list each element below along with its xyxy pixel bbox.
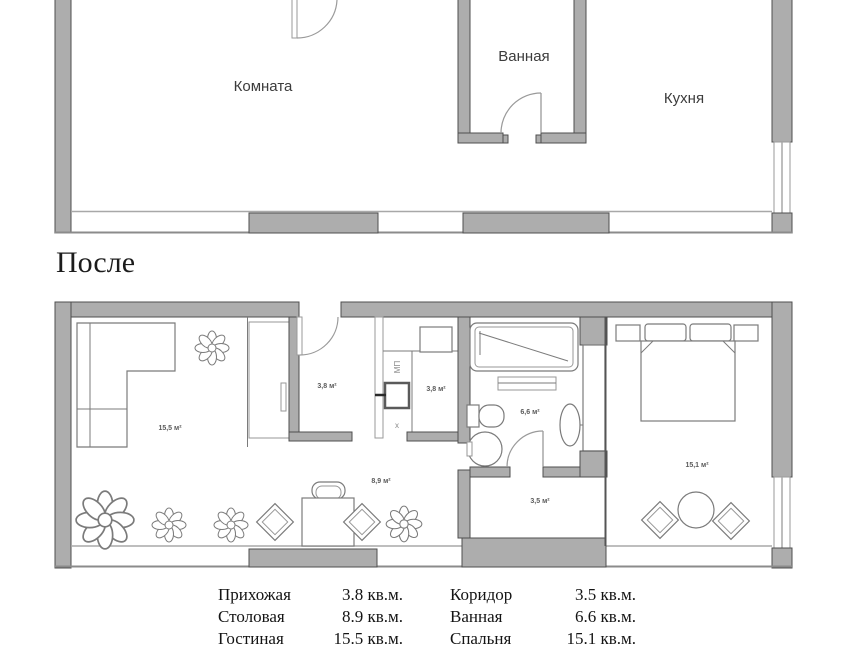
area-label-kitchen: 3,8 м² xyxy=(426,386,446,393)
room-door xyxy=(292,0,337,38)
wall-duct xyxy=(580,317,607,345)
dining-chair xyxy=(257,504,294,541)
entry-door-leaf xyxy=(297,317,302,355)
legend-row: Ванная 6.6 кв.м. xyxy=(450,606,636,628)
legend-column-right: Коридор 3.5 кв.м. Ванная 6.6 кв.м. Спаль… xyxy=(450,584,636,650)
closet-handle xyxy=(281,383,286,411)
radiator xyxy=(462,538,606,567)
closet xyxy=(249,322,289,438)
wall-bathroom-bottom xyxy=(543,467,583,477)
room-label-kuhnya: Кухня xyxy=(664,90,704,107)
legend-room-name: Коридор xyxy=(450,584,562,606)
kitchen-sink xyxy=(385,383,409,408)
washbasin xyxy=(468,432,502,466)
area-label-bedroom: 15,1 м² xyxy=(685,462,709,469)
area-label-dining: 8,9 м² xyxy=(371,478,391,485)
plant-icon xyxy=(76,491,134,549)
bathroom-door xyxy=(501,93,541,133)
area-label-corridor: 3,5 м² xyxy=(530,498,550,505)
dining-area: 8,9 м² xyxy=(257,478,422,546)
area-label-hallway: 3,8 м² xyxy=(317,383,337,390)
after-heading: После xyxy=(56,247,135,279)
wall-right xyxy=(772,302,792,477)
wall-right-corner xyxy=(772,213,792,233)
wall-top xyxy=(341,302,792,317)
legend-room-area: 15.5 кв.м. xyxy=(325,628,403,650)
bed xyxy=(641,341,735,421)
round-table xyxy=(678,492,714,528)
hob-label: х xyxy=(395,421,399,430)
floor-plan-before: Комната Ванная Кухня xyxy=(0,0,850,237)
area-label-bathroom: 6,6 м² xyxy=(520,409,540,416)
toilet-bowl xyxy=(479,405,504,427)
legend-room-area: 8.9 кв.м. xyxy=(325,606,403,628)
legend-row: Прихожая 3.8 кв.м. xyxy=(218,584,403,606)
dishwasher-label: МП xyxy=(393,361,402,374)
bathroom: 6,6 м² xyxy=(458,317,585,538)
radiator xyxy=(249,213,378,233)
wall-top xyxy=(55,302,299,317)
entry-door-arc xyxy=(300,317,338,355)
legend-room-name: Спальня xyxy=(450,628,562,650)
legend-room-name: Столовая xyxy=(218,606,325,628)
area-legend: Прихожая 3.8 кв.м. Столовая 8.9 кв.м. Го… xyxy=(218,584,636,650)
wall-left xyxy=(55,302,71,568)
wall-hallway-kitchen xyxy=(375,317,383,438)
toilet-tank xyxy=(467,405,479,427)
legend-row: Коридор 3.5 кв.м. xyxy=(450,584,636,606)
legend-row: Гостиная 15.5 кв.м. xyxy=(218,628,403,650)
radiator xyxy=(249,549,377,567)
wall-sink xyxy=(560,404,580,446)
legend-column-left: Прихожая 3.8 кв.м. Столовая 8.9 кв.м. Го… xyxy=(218,584,403,650)
legend-row: Спальня 15.1 кв.м. xyxy=(450,628,636,650)
pillow xyxy=(645,324,686,341)
legend-room-name: Прихожая xyxy=(218,584,325,606)
legend-room-name: Гостиная xyxy=(218,628,325,650)
legend-room-area: 3.5 кв.м. xyxy=(562,584,636,606)
floor-plan-after: 15,5 м² 3,8 м² МП х 3,8 м² xyxy=(0,291,850,577)
legend-room-area: 6.6 кв.м. xyxy=(562,606,636,628)
radiator xyxy=(463,213,609,233)
bathroom-door-arc xyxy=(507,431,543,467)
legend-row: Столовая 8.9 кв.м. xyxy=(218,606,403,628)
plant-icon xyxy=(214,508,248,542)
pillow xyxy=(690,324,731,341)
legend-room-name: Ванная xyxy=(450,606,562,628)
plant-icon xyxy=(152,508,186,542)
bedroom: 15,1 м² xyxy=(616,324,758,539)
plant-icon xyxy=(195,331,229,365)
stove xyxy=(420,327,452,352)
bathroom-walls xyxy=(458,0,586,143)
nightstand xyxy=(616,325,640,341)
wall-right xyxy=(772,0,792,142)
room-label-komnata: Комната xyxy=(234,78,293,95)
plant-icon xyxy=(386,506,422,542)
wall-duct xyxy=(580,451,607,477)
bedroom-chair xyxy=(713,503,750,540)
bedroom-chair xyxy=(642,502,679,539)
wall-kitchen-bottom xyxy=(289,432,352,441)
wall-bathroom-bottom xyxy=(470,467,510,477)
legend-room-area: 15.1 кв.м. xyxy=(562,628,636,650)
wall-right-corner xyxy=(772,548,792,568)
wall-left xyxy=(55,0,71,233)
wall-bathroom-left xyxy=(458,470,470,538)
nightstand xyxy=(734,325,758,341)
legend-room-area: 3.8 кв.м. xyxy=(325,584,403,606)
hallway: 3,8 м² xyxy=(297,317,383,438)
area-label-living: 15,5 м² xyxy=(158,425,182,432)
bedroom-wardrobe xyxy=(583,345,605,451)
room-label-vannaya: Ванная xyxy=(498,48,549,65)
